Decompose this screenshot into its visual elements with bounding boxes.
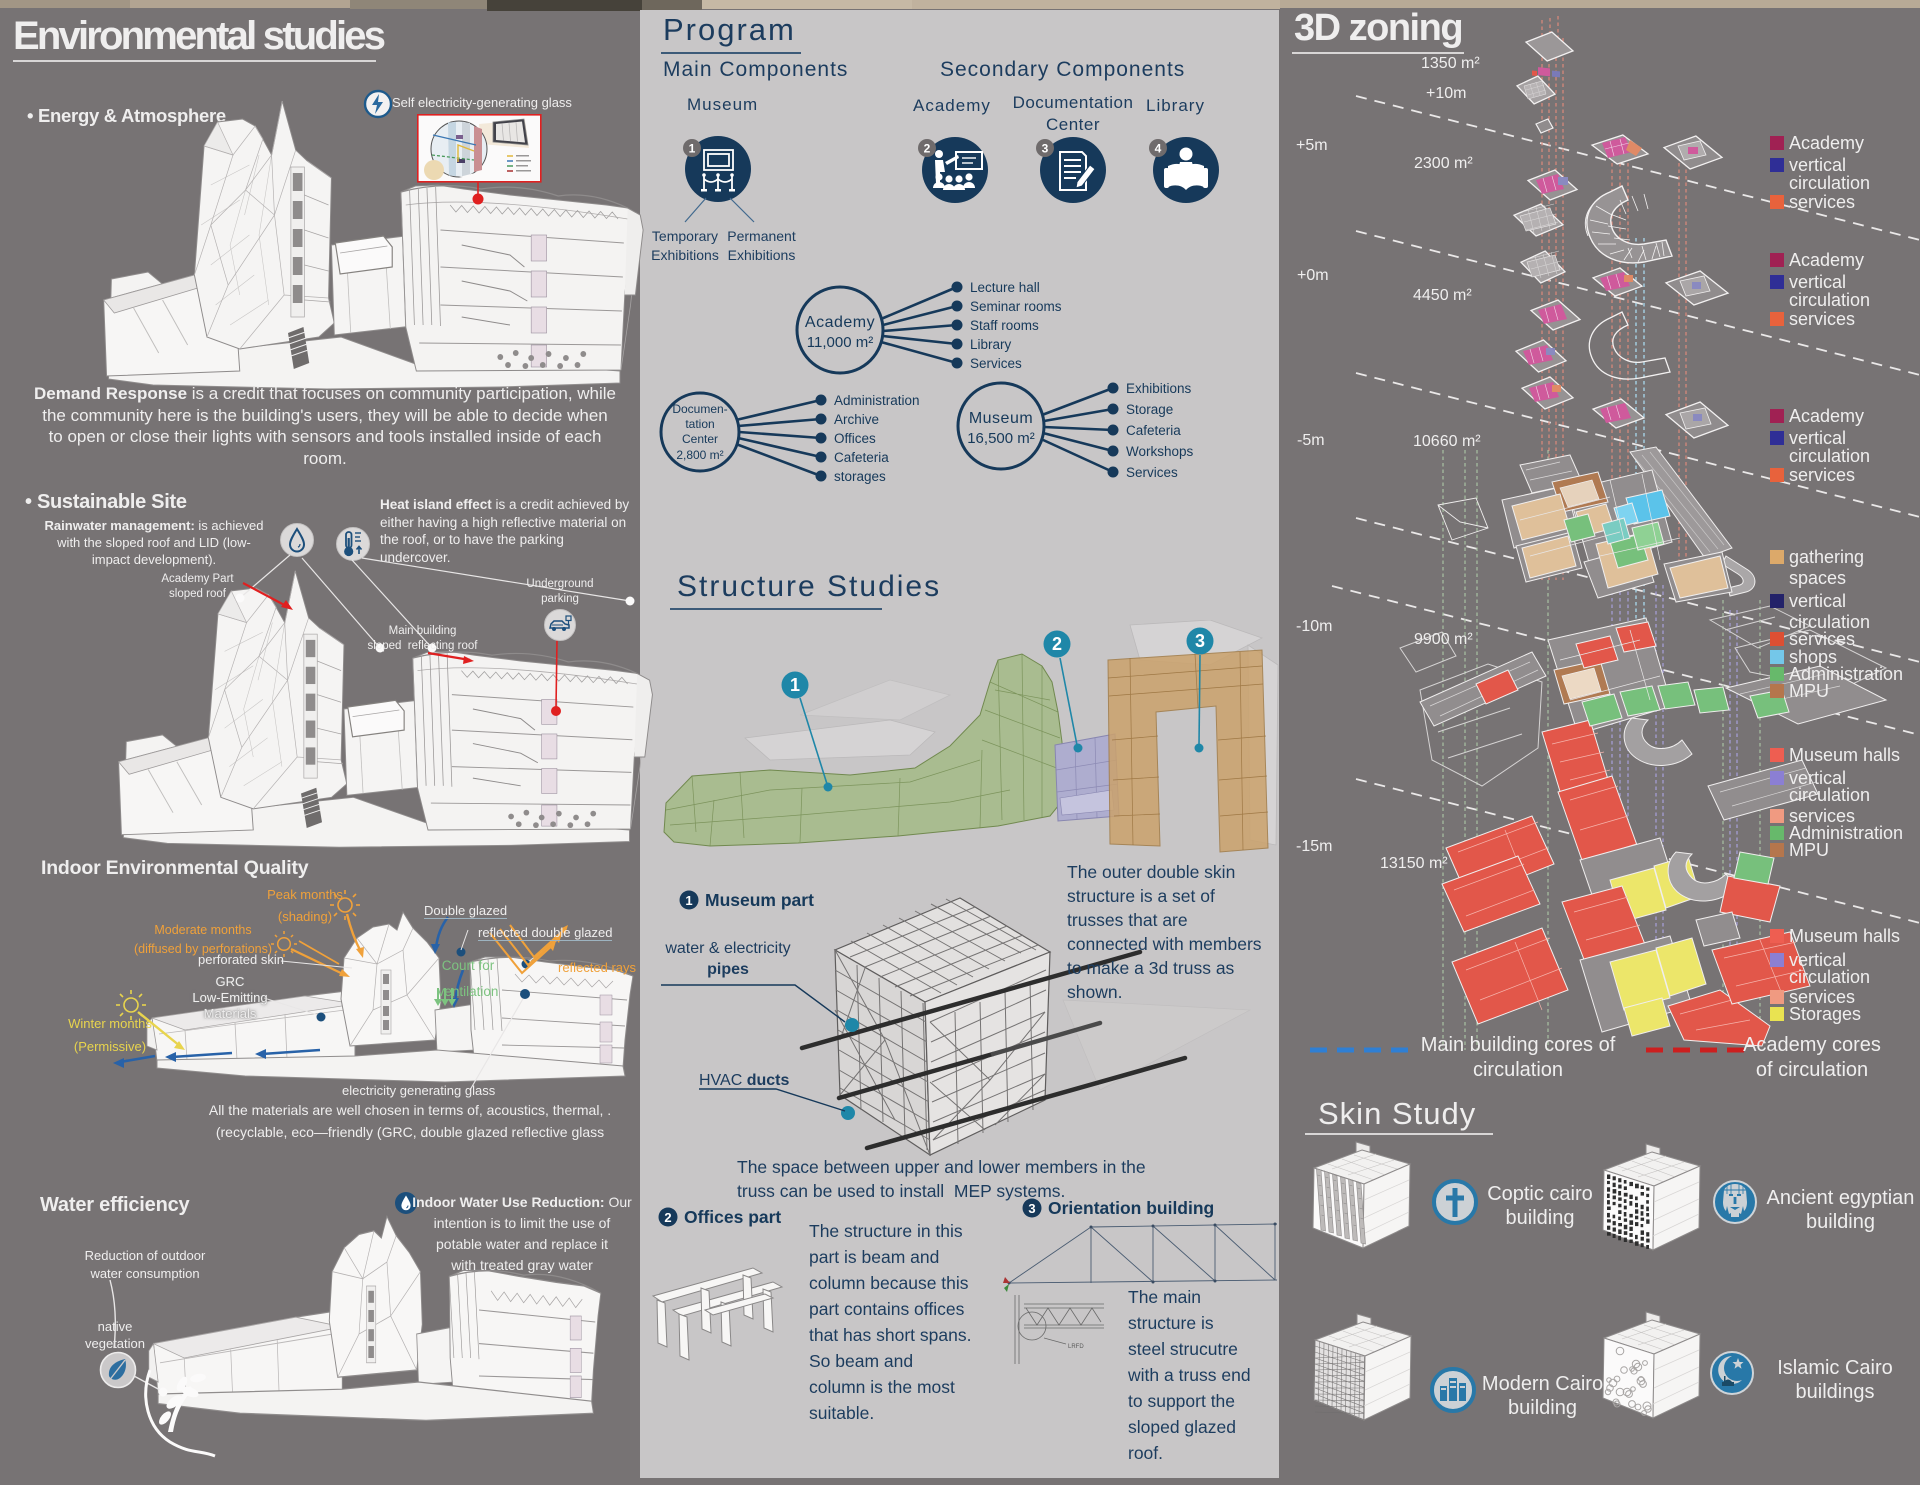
svg-text:Services: Services [1126,465,1178,480]
svg-text:Archive: Archive [834,412,879,427]
svg-text:Center: Center [682,432,718,446]
svg-text:Cafeteria: Cafeteria [834,450,889,465]
svg-text:2: 2 [924,142,931,156]
svg-text:LRFD: LRFD [1068,1344,1084,1350]
svg-text:2,800 m²: 2,800 m² [676,448,723,462]
svg-text:Administration: Administration [834,393,920,408]
svg-text:Offices: Offices [834,431,876,446]
svg-text:Offices part: Offices part [684,1207,781,1227]
svg-text:2: 2 [664,1210,671,1225]
svg-text:Academy: Academy [805,314,875,331]
svg-text:4: 4 [1155,142,1162,156]
svg-text:1: 1 [689,142,696,156]
svg-text:Seminar rooms: Seminar rooms [970,299,1062,314]
svg-text:Documen-: Documen- [672,402,727,416]
svg-text:Museum: Museum [969,410,1033,427]
svg-text:Storage: Storage [1126,402,1173,417]
svg-text:3: 3 [1042,142,1049,156]
svg-text:Exhibitions: Exhibitions [1126,381,1192,396]
svg-text:Lecture hall: Lecture hall [970,280,1040,295]
svg-text:2: 2 [1052,634,1062,654]
svg-text:Cafeteria: Cafeteria [1126,423,1181,438]
svg-text:Services: Services [970,356,1022,371]
svg-text:Staff rooms: Staff rooms [970,318,1039,333]
svg-text:1: 1 [790,675,800,695]
svg-text:Library: Library [970,337,1012,352]
svg-text:storages: storages [834,469,886,484]
svg-text:3: 3 [1195,631,1205,651]
svg-text:11,000 m²: 11,000 m² [807,334,873,351]
svg-text:3: 3 [1028,1201,1035,1216]
svg-text:16,500 m²: 16,500 m² [967,430,1035,447]
svg-text:Workshops: Workshops [1126,444,1194,459]
svg-text:tation: tation [685,417,714,431]
